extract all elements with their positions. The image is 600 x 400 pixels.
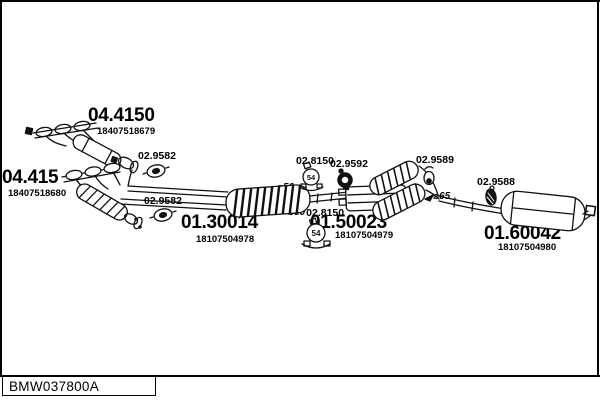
gasket-upper-icon — [143, 163, 169, 178]
oem-number-manifold-left: 18407518680 — [8, 189, 66, 199]
frame-top-border — [0, 0, 600, 2]
part-number-manifold-left: 04.415 — [2, 168, 58, 187]
frame-left-border — [0, 0, 2, 377]
clamp-lower-label: 02.8150 — [306, 208, 344, 219]
tailpipe-drawing — [583, 205, 596, 220]
bolt-mark — [343, 184, 349, 190]
gasket-upper-label: 02.9582 — [138, 151, 176, 162]
diameter-50-lower-label: ⌀50 — [288, 208, 305, 219]
diameter-65-arrow — [425, 195, 433, 201]
oem-number-rear-muffler: 18107504980 — [498, 243, 556, 253]
mid-connecting-pipe-drawing — [310, 191, 358, 203]
ring-gasket-icon — [339, 169, 351, 186]
part-number-rear-muffler: 01.60042 — [484, 224, 561, 243]
oem-number-mid-section: 18107504979 — [335, 231, 393, 241]
oem-number-front-pipe: 18107504978 — [196, 235, 254, 245]
gasket-lower-label: 02.9582 — [144, 196, 182, 207]
drawing-code-text: BMW037800A — [9, 379, 99, 394]
hanger-rear-icon — [485, 186, 497, 206]
part-number-front-pipe: 01.30014 — [181, 213, 258, 232]
mid-canister-drawing — [339, 185, 407, 211]
diameter-65-label: ⌀65 — [433, 192, 450, 202]
oem-number-manifold-right: 18407518679 — [97, 127, 155, 137]
gasket-lower-icon — [150, 207, 176, 222]
ring-gasket-label: 02.9592 — [330, 159, 368, 170]
hanger-mid-icon — [424, 167, 434, 185]
frame-right-border — [597, 0, 599, 377]
clamp-upper-size-text: 54 — [307, 173, 316, 182]
drawing-code-box: BMW037800A — [2, 377, 156, 396]
hanger-rear-label: 02.9588 — [477, 177, 515, 188]
clamp-upper-label: 02.8150 — [296, 156, 334, 167]
exhaust-parts-diagram: 04.4150 18407518679 04.415 18407518680 0… — [0, 0, 600, 400]
hanger-mid-label: 02.9589 — [416, 155, 454, 166]
exhaust-system-drawing: 54 54 — [0, 0, 600, 400]
part-number-manifold-right: 04.4150 — [88, 106, 155, 125]
diameter-50-clamp-label-group: ⌀50 02.8150 — [288, 208, 344, 219]
diameter-50-upper-label: ⌀50 — [277, 183, 294, 193]
manifold-left-drawing — [62, 162, 144, 230]
